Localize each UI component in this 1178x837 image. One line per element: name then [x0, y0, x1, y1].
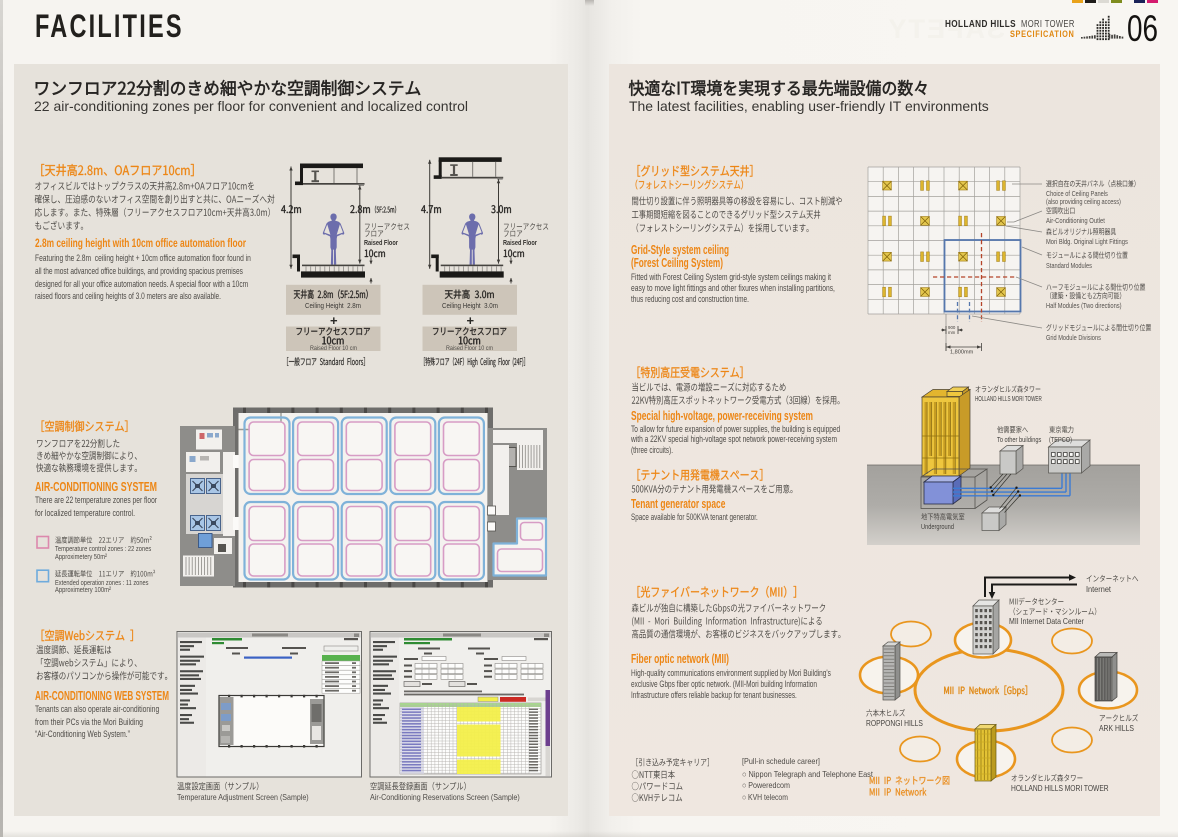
svg-text:1,800mm: 1,800mm — [950, 350, 974, 356]
svg-text:mm: mm — [948, 330, 956, 335]
svg-text:+: + — [467, 313, 475, 328]
svg-text:+: + — [330, 313, 338, 328]
